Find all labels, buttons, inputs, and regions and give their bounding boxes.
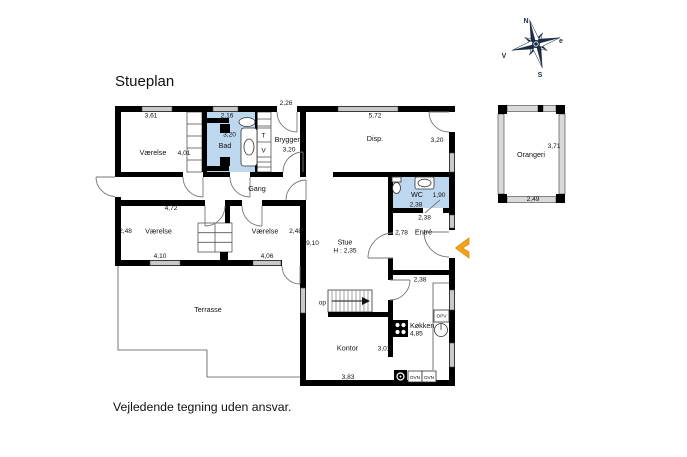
room-label-kontor: Kontor <box>337 344 359 353</box>
terrasse-outline <box>118 266 302 377</box>
dim-v2-top: 4,72 <box>165 205 178 212</box>
oven-right-label: OVN <box>424 375 434 380</box>
dim-bad-top: 2,16 <box>221 113 234 120</box>
dim-entre-left: 2,78 <box>395 230 408 237</box>
entrance-arrow-icon <box>456 238 470 258</box>
room-label-bad: Bad <box>219 141 232 150</box>
floorplan-page: Stueplan <box>0 0 687 457</box>
room-label-orangeri: Orangeri <box>517 150 545 159</box>
dim-bad-side: 3,20 <box>223 132 236 139</box>
dishwasher-label: OPV <box>437 314 448 319</box>
stairs-op-label: op <box>319 300 327 307</box>
dim-kitchen: 4,85 <box>410 331 423 338</box>
dim-v3-bottom: 4,06 <box>261 253 274 260</box>
compass-w-label: V <box>502 53 507 60</box>
compass-e-label: e <box>559 38 563 45</box>
room-label-v1: Værelse <box>140 148 167 157</box>
dim-stue-left: 9,10 <box>306 240 319 247</box>
room-label-terrasse: Terrasse <box>194 305 222 314</box>
room-labels: 3,61 Værelse 4,01 2,16 3,20 Bad T V 2,26… <box>119 100 561 381</box>
room-label-stue: Stue <box>338 238 353 247</box>
room-label-wc: WC <box>411 190 423 199</box>
stove-icon <box>393 320 408 337</box>
room-label-entre: Entré <box>415 228 432 237</box>
disclaimer-text: Vejledende tegning uden ansvar. <box>113 400 291 414</box>
dim-v2-bottom: 4,10 <box>154 253 167 260</box>
room-label-disp: Disp. <box>367 134 383 143</box>
compass-s-label: S <box>538 72 543 79</box>
dim-wc-below: 2,38 <box>418 215 431 222</box>
dim-v2-left: 2,48 <box>119 228 132 235</box>
room-label-bryggers: Bryggers <box>275 135 304 144</box>
dim-wc-door: 2,38 <box>410 202 423 209</box>
closet-v-label: V <box>261 148 266 155</box>
closet-t-label: T <box>262 133 266 140</box>
dim-disp-right: 3,20 <box>431 137 444 144</box>
room-label-gang: Gang <box>248 184 266 193</box>
room-label-v2: Værelse <box>145 227 172 236</box>
stue-ceiling-height: H : 2,35 <box>333 248 356 255</box>
dim-orangeri-right: 3,71 <box>548 143 561 150</box>
stairs <box>328 290 372 312</box>
dim-v1-top: 3,61 <box>145 113 158 120</box>
dim-orangeri-bottom: 2,49 <box>527 196 540 203</box>
compass-n-label: N <box>523 18 528 25</box>
room-label-v3: Værelse <box>252 227 279 236</box>
compass-rose: N e S V <box>502 13 567 79</box>
dim-bryggers-top: 2,26 <box>280 100 293 107</box>
dim-entre-below: 2,38 <box>414 277 427 284</box>
dim-kontor-bottom: 3,83 <box>342 374 355 381</box>
dim-v1-right: 4,01 <box>178 150 191 157</box>
page-title: Stueplan <box>115 73 174 90</box>
floorplan-svg: Stueplan <box>0 0 687 457</box>
dim-disp-top: 5,72 <box>369 113 382 120</box>
dim-wc-right: 1,90 <box>433 192 446 199</box>
oven-left-label: OVN <box>410 375 420 380</box>
dim-kontor-right: 3,01 <box>378 346 391 353</box>
room-label-kitchen: Køkken <box>410 321 434 330</box>
dim-v3-right: 2,48 <box>289 228 302 235</box>
dim-bryggers-side: 3,20 <box>283 147 296 154</box>
